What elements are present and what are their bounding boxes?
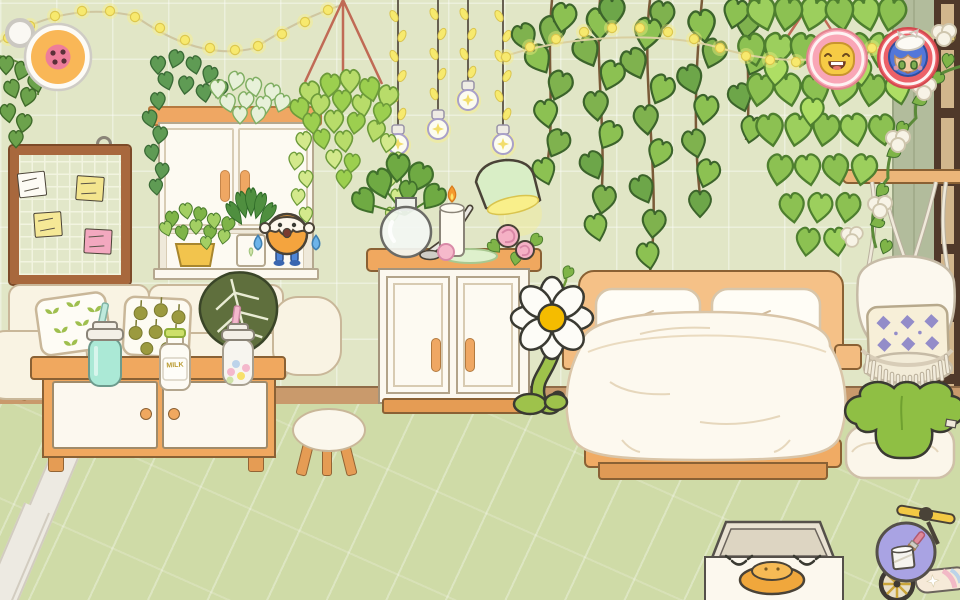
- daisy-center: [539, 305, 566, 332]
- decorate-button[interactable]: [874, 520, 938, 584]
- duck-face: [704, 552, 844, 600]
- dresser-door-left[interactable]: [386, 276, 450, 394]
- daisy-plush[interactable]: [500, 270, 610, 430]
- table-items: [80, 300, 260, 395]
- character-slot-1[interactable]: [805, 27, 869, 91]
- drawer-knob: [168, 408, 180, 420]
- pink-bud: [438, 244, 454, 260]
- smiling-yellow-face-icon: [820, 43, 854, 75]
- glass-vase-plant[interactable]: [349, 153, 450, 257]
- dresser-handle: [431, 338, 441, 372]
- drawer-knob: [140, 408, 152, 420]
- blanket-tag: [945, 419, 956, 428]
- milk-label: MILK: [163, 361, 187, 369]
- floor-cushion-seat[interactable]: [838, 385, 960, 485]
- character-slot-2[interactable]: [876, 26, 940, 90]
- candy-jar[interactable]: [222, 306, 254, 385]
- dresser-handle: [465, 338, 475, 372]
- stool-cushion: [292, 408, 366, 452]
- milk-bottle[interactable]: [160, 329, 190, 390]
- room-scene: MILK: [0, 0, 960, 600]
- donut-menu-button[interactable]: [22, 21, 94, 93]
- mason-jar-drink[interactable]: [87, 303, 123, 386]
- dresser-decor: [350, 150, 550, 270]
